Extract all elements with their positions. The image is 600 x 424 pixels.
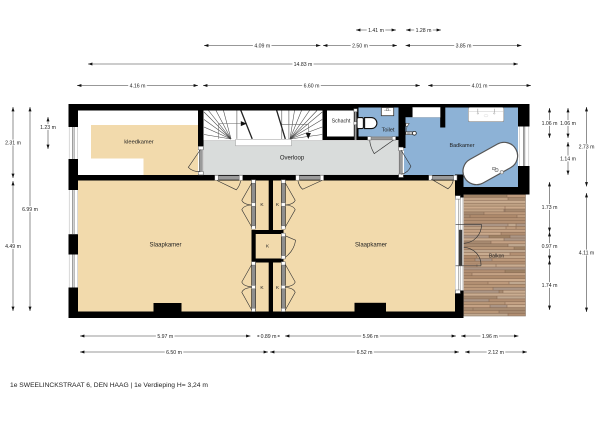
svg-text:0.89 m: 0.89 m <box>261 334 277 340</box>
svg-text:6.99 m: 6.99 m <box>22 207 38 213</box>
svg-text:14.83 m: 14.83 m <box>294 62 313 68</box>
svg-text:3.85 m: 3.85 m <box>456 43 472 49</box>
svg-text:Overloop: Overloop <box>280 155 305 161</box>
svg-text:Badkamer: Badkamer <box>449 143 474 149</box>
svg-text:1.74 m: 1.74 m <box>542 283 558 289</box>
svg-text:Slaapkamer: Slaapkamer <box>355 243 387 249</box>
svg-text:kleedkamer: kleedkamer <box>124 140 154 146</box>
svg-text:6.60 m: 6.60 m <box>304 83 320 89</box>
svg-text:6.52 m: 6.52 m <box>357 350 373 356</box>
svg-text:1.14 m: 1.14 m <box>560 156 576 162</box>
svg-text:Slaapkamer: Slaapkamer <box>149 243 181 249</box>
svg-text:2.50 m: 2.50 m <box>352 43 368 49</box>
svg-text:2.12 m: 2.12 m <box>488 350 504 356</box>
svg-text:1.28 m: 1.28 m <box>416 28 432 34</box>
svg-text:Balkon: Balkon <box>489 254 505 260</box>
svg-text:4.11 m: 4.11 m <box>579 250 594 256</box>
svg-text:6.50 m: 6.50 m <box>166 350 182 356</box>
svg-text:1e SWEELINCKSTRAAT 6, DEN HAAG: 1e SWEELINCKSTRAAT 6, DEN HAAG | 1e Verd… <box>10 382 208 389</box>
svg-text:1.06 m: 1.06 m <box>560 121 576 127</box>
svg-text:5.96 m: 5.96 m <box>363 334 379 340</box>
svg-text:1.41 m: 1.41 m <box>368 28 384 34</box>
svg-text:4.09 m: 4.09 m <box>254 43 270 49</box>
svg-text:Schacht: Schacht <box>332 119 351 125</box>
svg-text:2.31 m: 2.31 m <box>5 140 21 146</box>
svg-text:4.49 m: 4.49 m <box>5 244 21 250</box>
svg-text:5.97 m: 5.97 m <box>157 334 173 340</box>
svg-text:1.96 m: 1.96 m <box>482 334 498 340</box>
svg-text:4.01 m: 4.01 m <box>472 83 488 89</box>
svg-text:0.97 m: 0.97 m <box>542 244 558 250</box>
svg-text:1.73 m: 1.73 m <box>542 205 558 211</box>
svg-text:Toilet: Toilet <box>382 128 395 134</box>
svg-text:4.16 m: 4.16 m <box>130 83 146 89</box>
svg-text:1.23 m: 1.23 m <box>40 125 56 131</box>
svg-text:1.06 m: 1.06 m <box>542 121 558 127</box>
svg-text:2.73 m: 2.73 m <box>579 145 595 151</box>
